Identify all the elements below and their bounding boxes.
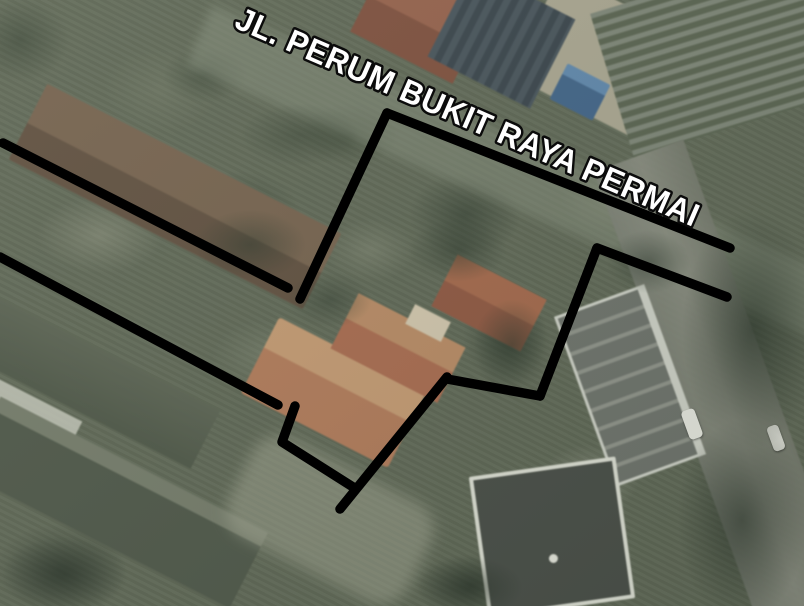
map-annotation-overlay: JL. PERUM BUKIT RAYA PERMAI [0,0,804,606]
boundary-line-left-elbow [282,406,353,487]
boundary-line-inner-step [447,379,540,396]
boundary-line-right-side [540,248,597,396]
satellite-map: JL. PERUM BUKIT RAYA PERMAI [0,0,804,606]
street-label: JL. PERUM BUKIT RAYA PERMAI [230,0,705,233]
boundary-line-corner-left-arm [300,113,387,299]
boundary-line-left-upper [3,143,288,288]
boundary-line-right-front [597,248,727,297]
boundary-line-left-lower [0,257,278,405]
